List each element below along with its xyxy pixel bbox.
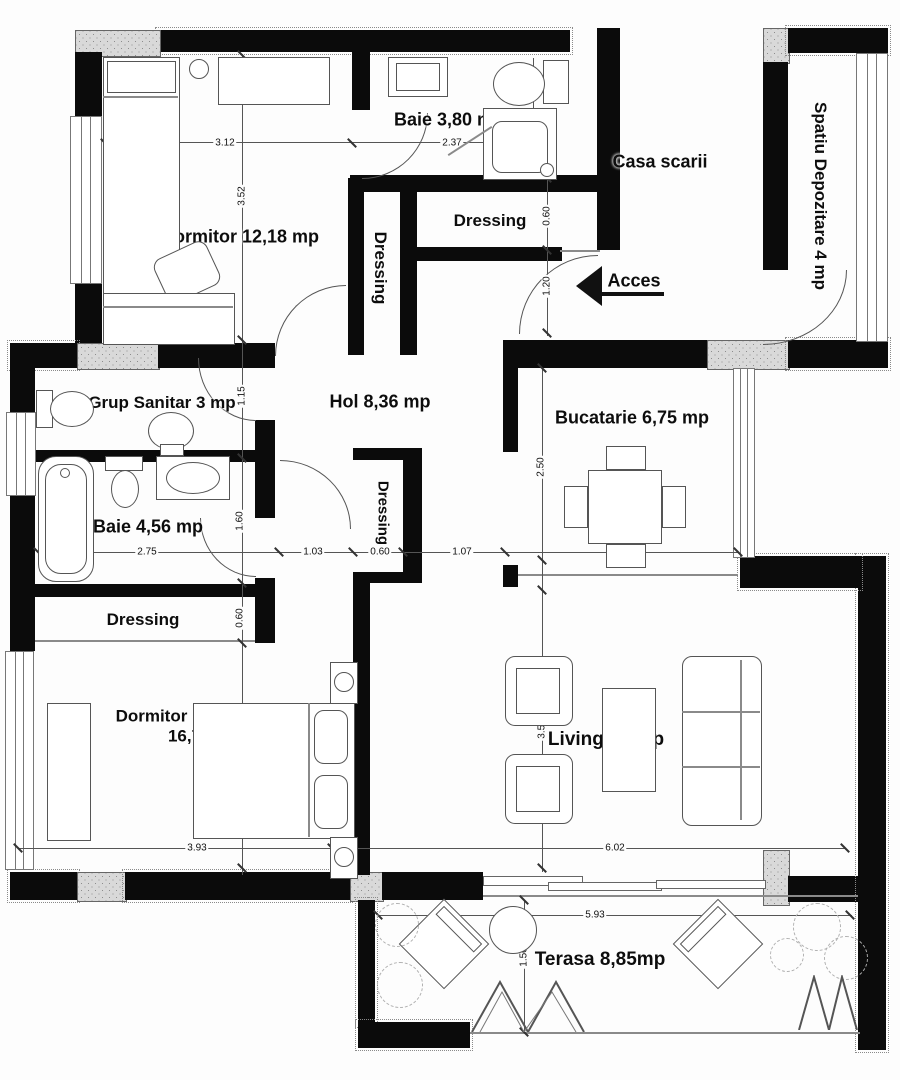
dim-label-living-width: 6.02 (603, 843, 626, 854)
wall-left-upper (75, 52, 102, 116)
bathtub-faucet (60, 468, 70, 478)
hatched-pier-row (77, 343, 160, 370)
desk (218, 57, 330, 105)
dim-label-dormitor-height: 3.52 (237, 184, 248, 207)
door-arc-baie2 (200, 518, 256, 577)
access-arrow-icon (576, 266, 602, 306)
wardrobe (47, 703, 91, 841)
wall-dorm-divider-lower (348, 178, 364, 355)
tree-plant (375, 903, 419, 947)
terasa-edge-line (470, 1032, 860, 1034)
tree-plant (770, 938, 804, 972)
dim-label-kitchen-opening: 1.07 (450, 547, 473, 558)
armchair-2-seat (516, 766, 560, 812)
dim-line-bottom-horizontal (18, 848, 845, 849)
access-label: Acces (607, 271, 660, 292)
room-label-dressing-top: Dressing (454, 211, 527, 231)
hatched-pier-terasa-right (763, 850, 790, 906)
wall-baie1-bottom (350, 175, 600, 192)
dim-label-dormitor-width: 3.12 (213, 138, 236, 149)
zigzag-decoration-right (797, 975, 859, 1030)
dim-label-baie2-width: 2.75 (135, 547, 158, 558)
tree-plant (824, 936, 868, 980)
bathtub-inner (45, 464, 87, 574)
dresser (103, 293, 235, 345)
armchair-1-seat (516, 668, 560, 714)
room-label-grup-sanitar: Grup Sanitar 3 mp (88, 393, 235, 413)
dim-label-grup-height: 1.15 (237, 384, 248, 407)
floor-plan: 3.12 2.37 3.52 1.57 0.60 1.20 1.15 1.60 … (0, 0, 900, 1080)
kitchen-chair-top (606, 446, 646, 470)
window-dormitor (70, 116, 102, 284)
closet-line-vestibule (560, 250, 600, 252)
wall-entry (597, 28, 620, 250)
wall-terasa-right-stub (788, 876, 860, 902)
room-label-dressing-hall: Dressing (370, 232, 390, 305)
room-label-dormitor: Dormitor 12,18 mp (161, 227, 319, 248)
window-matrimonial (5, 651, 34, 870)
wall-right-main (858, 556, 886, 1050)
zigzag-decoration-left (470, 980, 586, 1032)
kitchen-chair-left (564, 486, 588, 528)
dim-label-vestibule-top: 0.60 (542, 204, 553, 227)
stool (189, 59, 209, 79)
lounge-chair-1-back (436, 906, 483, 953)
nightstand-1-lamp (334, 672, 354, 692)
lounge-chair-2-back (680, 906, 727, 953)
window-grup-sanitar (6, 412, 36, 496)
window-kitchen (733, 368, 755, 558)
wall-storage-top (788, 28, 888, 53)
room-label-bucatarie: Bucatarie 6,75 mp (555, 408, 709, 429)
wall-hol-right-c (255, 462, 275, 518)
toilet-baie2-bowl (111, 470, 139, 508)
wall-left-d (10, 494, 35, 651)
dim-label-terasa-width: 5.93 (583, 910, 606, 921)
kitchen-counter-line (518, 574, 738, 576)
dim-label-matrimonial-width: 3.93 (185, 843, 208, 854)
sofa (682, 656, 762, 826)
sink-grup-pedestal (160, 444, 184, 456)
access-arrow-tail (600, 292, 664, 296)
wall-dressing-left-top (35, 584, 273, 597)
sliding-door-panel-2 (548, 882, 662, 891)
room-label-dressing-mid: Dressing (375, 481, 392, 545)
wall-kitchen-left-stub (503, 565, 518, 587)
sofa-cushion-line-2 (682, 766, 760, 768)
dim-label-dressing-mid-width: 0.60 (368, 547, 391, 558)
sink-baie1-basin (396, 63, 440, 91)
wall-matrimonial-right (353, 572, 370, 875)
lounge-chair-2 (673, 899, 764, 990)
door-arc-dressing-mid (280, 460, 351, 529)
coffee-table (602, 688, 656, 792)
door-arc-dormitor (275, 285, 346, 356)
wall-kitchen-top (503, 340, 707, 368)
toilet-baie1-tank (543, 60, 569, 104)
window-storage (856, 53, 888, 342)
wall-left-c (10, 368, 35, 412)
sofa-back-line (740, 660, 742, 820)
room-label-hol: Hol 8,36 mp (329, 392, 430, 413)
room-label-spatiu-depozitare: Spatiu Depozitare 4 mp (810, 102, 830, 290)
wall-kitchen-left (503, 368, 518, 452)
wall-bottom-a (10, 872, 77, 900)
living-floor-edge (483, 895, 858, 897)
wall-top (158, 30, 570, 52)
wall-bottom-b (125, 872, 350, 900)
room-label-baie2: Baie 4,56 mp (93, 517, 203, 538)
sink-baie2-basin (166, 462, 220, 494)
hatched-pier-bottom-1 (77, 872, 127, 902)
nightstand-2-lamp (334, 847, 354, 867)
toilet-baie2-tank (105, 456, 143, 471)
dim-label-dressing-left-height: 0.60 (235, 606, 246, 629)
dresser-line (103, 306, 233, 308)
wall-left-mid (75, 282, 102, 344)
toilet-baie1-bowl (493, 62, 545, 106)
wall-vestibule (417, 247, 562, 261)
room-label-terasa: Terasa 8,85mp (535, 949, 666, 971)
room-label-casa-scarii: Casa scarii (612, 152, 707, 173)
door-arc-storage (763, 270, 847, 345)
wall-dressing-top-right (400, 192, 417, 355)
room-label-dressing-left: Dressing (107, 610, 180, 630)
terasa-table (489, 906, 537, 954)
dim-label-entry-opening: 1.20 (542, 274, 553, 297)
sofa-cushion-line-1 (682, 711, 760, 713)
tree-plant (377, 962, 423, 1008)
shower-inner (492, 121, 548, 173)
wall-living-notch (740, 556, 860, 588)
wall-hol-right-a (255, 343, 275, 360)
dim-line-entry-vertical (547, 178, 548, 336)
hatched-pier-kitchen (707, 340, 790, 370)
wall-row-left (10, 343, 77, 368)
hatched-pier-storage-top (763, 28, 790, 64)
pillow-2 (314, 775, 348, 829)
toilet-grup-bowl (50, 391, 94, 427)
wall-dorm-divider-upper (352, 52, 370, 110)
bed-pillow (107, 61, 176, 93)
kitchen-table (588, 470, 662, 544)
wall-terasa-corner (358, 1022, 470, 1048)
sliding-door-panel-3 (656, 880, 766, 889)
shower-drain (540, 163, 554, 177)
wall-terasa-left (358, 900, 375, 1025)
kitchen-chair-right (662, 486, 686, 528)
dim-label-hol-segment: 1.03 (301, 547, 324, 558)
wall-bottom-c (382, 872, 483, 900)
dim-label-bucatarie-height: 2.50 (536, 455, 547, 478)
bed-fold-line (103, 96, 178, 98)
kitchen-chair-bottom (606, 544, 646, 568)
wall-storage-left (763, 62, 788, 270)
pillow-1 (314, 710, 348, 764)
dim-label-baie2-height: 1.60 (235, 509, 246, 532)
double-bed-line (308, 703, 310, 837)
dim-tick (347, 138, 357, 148)
closet-line-dressing-left (35, 640, 255, 642)
wall-storage-bottom (788, 340, 888, 368)
